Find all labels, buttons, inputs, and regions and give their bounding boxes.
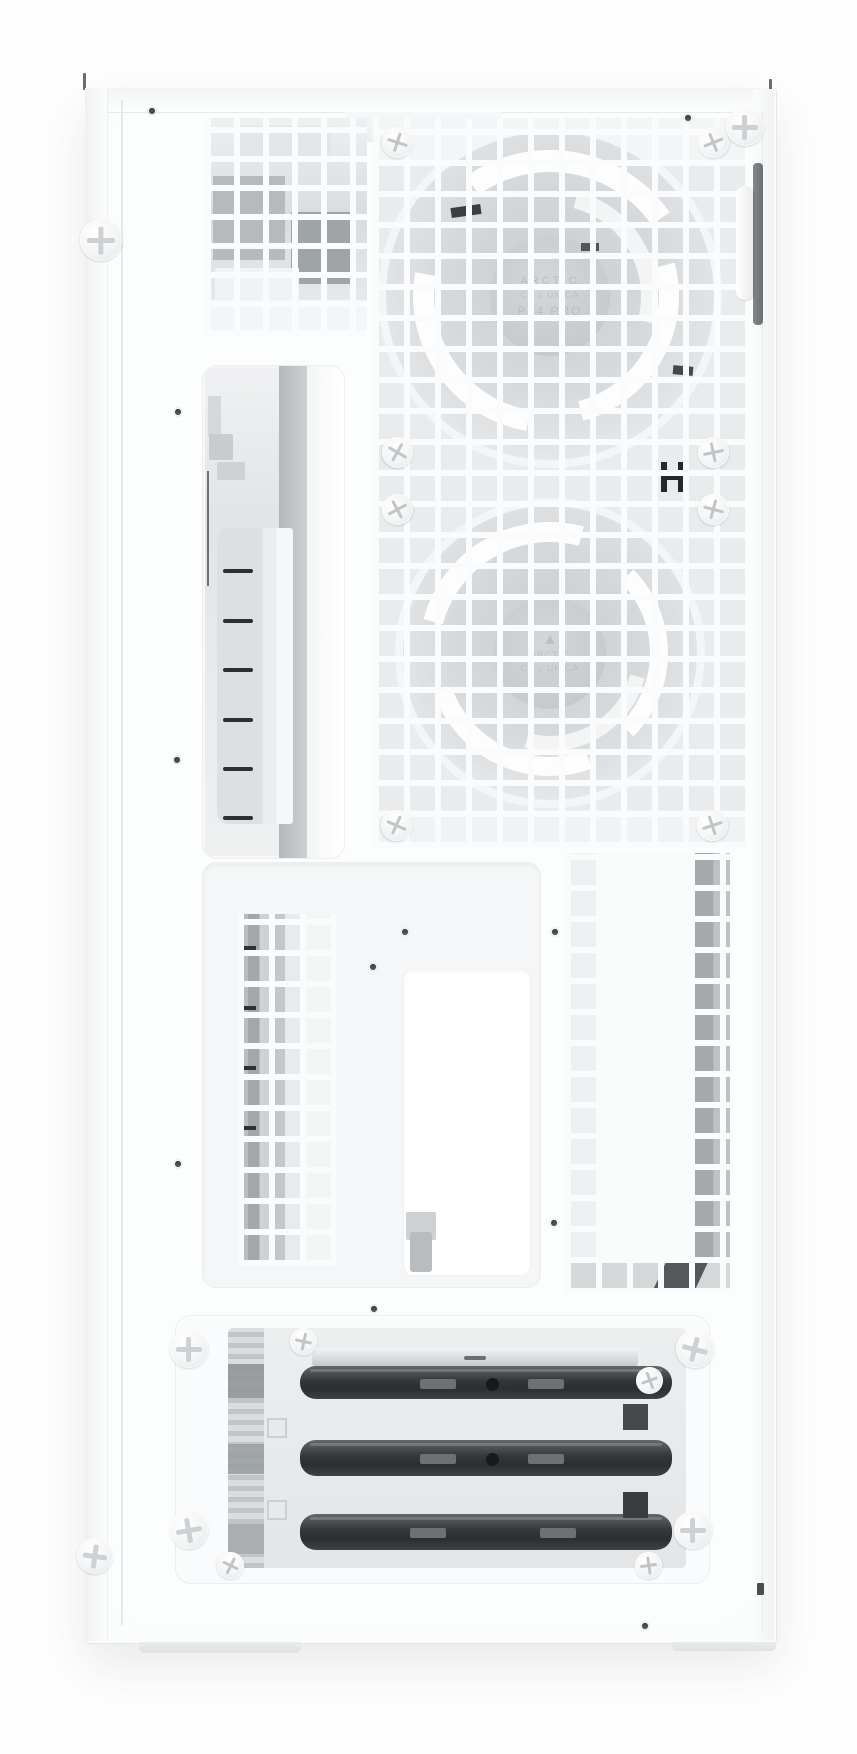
front-edge-strip <box>85 88 108 1641</box>
panel-gap-seam-right <box>762 112 763 1630</box>
hdd-tray-slot-2 <box>300 1440 672 1476</box>
screw-hole <box>149 108 155 114</box>
thumbscrew <box>674 1511 712 1549</box>
hdd-tray-slot-1 <box>300 1366 672 1399</box>
tray-knob <box>486 1378 499 1391</box>
interior-tab <box>217 462 245 480</box>
cage-dark-square <box>623 1492 648 1518</box>
screw-hole <box>175 1161 181 1167</box>
screw-hole <box>642 1623 648 1629</box>
screw-hole <box>175 409 181 415</box>
product-photo-scene: ARCTIC C€ ▵ UK CA P14 PRO ▲ ARCTIC C€ ▵ … <box>0 0 857 1754</box>
case-foot-left <box>139 1642 301 1653</box>
side-panel-screw-front-top <box>80 219 122 261</box>
rail-notch <box>464 1356 486 1360</box>
bracket-slot <box>223 668 253 672</box>
tray-latch-tab <box>410 1528 446 1538</box>
interior-dark-edge <box>207 471 209 586</box>
slot-highlight <box>310 1369 662 1372</box>
screw-hole <box>174 757 180 763</box>
vent-mesh-top-left <box>205 118 367 336</box>
interior-tab <box>209 434 233 460</box>
screw-hole <box>371 1306 377 1312</box>
ladder-bracket <box>217 528 293 824</box>
screw-hole <box>370 964 376 970</box>
drive-rib-shadow <box>228 1444 264 1474</box>
cage-dark-square <box>623 1404 648 1430</box>
cutout-window <box>403 969 531 1276</box>
cage-square-cutout <box>267 1500 287 1520</box>
drive-rib-shadow <box>228 1524 264 1554</box>
bracket-slot <box>223 816 253 820</box>
side-panel-thumbscrew-rear <box>726 108 764 146</box>
case-foot-right <box>672 1642 776 1651</box>
vent-mesh-right <box>565 853 730 1294</box>
panel-latch-slot <box>753 163 763 325</box>
vent-mesh-mid-strip <box>238 914 336 1266</box>
interior-clip <box>410 1232 432 1272</box>
interior-tab <box>208 396 221 436</box>
panel-latch-lever <box>736 186 753 300</box>
slot-highlight <box>310 1443 662 1446</box>
mesh-grid-overlay <box>238 914 336 1266</box>
bracket-slot <box>223 569 253 573</box>
tray-knob <box>486 1453 499 1466</box>
screw-hole <box>685 115 691 121</box>
side-bracket-opening <box>202 365 345 859</box>
tray-latch-tab <box>540 1528 576 1538</box>
tray-rail <box>312 1348 638 1366</box>
top-panel-rail <box>85 88 775 113</box>
tray-latch-tab <box>420 1379 456 1389</box>
bracket-slot <box>223 767 253 771</box>
hdd-cage-opening <box>228 1328 686 1568</box>
mesh-grid-overlay <box>373 118 745 848</box>
mid-recessed-panel <box>202 862 541 1288</box>
screw-hole <box>552 929 558 935</box>
drive-rib-shadow <box>228 1364 264 1398</box>
interior-bright-strip <box>307 366 344 858</box>
bracket-slot <box>223 619 253 623</box>
hdd-tray-slot-3 <box>300 1514 672 1550</box>
tray-latch-tab <box>420 1454 456 1464</box>
rear-notch <box>757 1583 764 1595</box>
panel-fold-seam-left <box>121 100 123 1625</box>
mesh-grid-overlay <box>205 118 367 336</box>
mesh-grid-overlay <box>565 853 730 1294</box>
tray-latch-tab <box>528 1379 564 1389</box>
slot-highlight <box>310 1517 662 1520</box>
tray-latch-tab <box>528 1454 564 1464</box>
bracket-slot <box>223 718 253 722</box>
screw-hole <box>402 929 408 935</box>
fan-bay-mesh: ARCTIC C€ ▵ UK CA P14 PRO ▲ ARCTIC C€ ▵ … <box>373 118 745 848</box>
cage-square-cutout <box>267 1418 287 1438</box>
screw-hole <box>551 1220 557 1226</box>
thumbscrew <box>170 1330 208 1368</box>
